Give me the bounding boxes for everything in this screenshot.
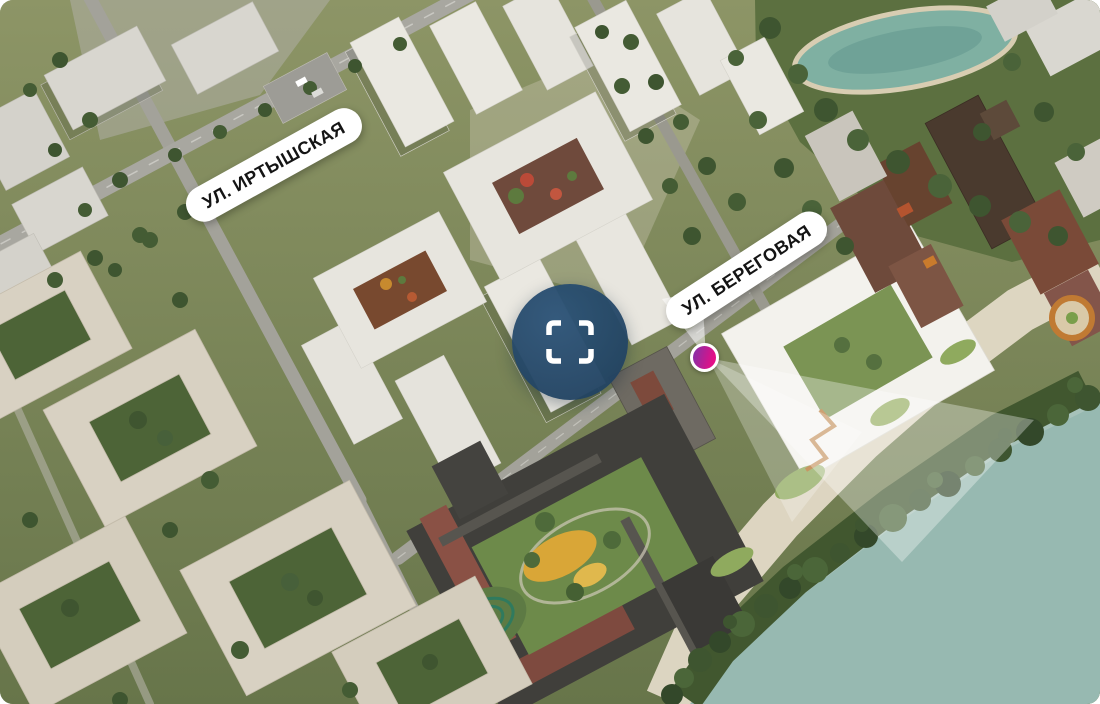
masterplan-map-card: УЛ. ИРТЫШСКАЯ УЛ. БЕРЕГОВАЯ <box>0 0 1100 704</box>
fullscreen-brackets-icon <box>546 320 594 364</box>
focus-marker-button[interactable] <box>512 284 628 400</box>
location-marker[interactable] <box>690 343 719 372</box>
